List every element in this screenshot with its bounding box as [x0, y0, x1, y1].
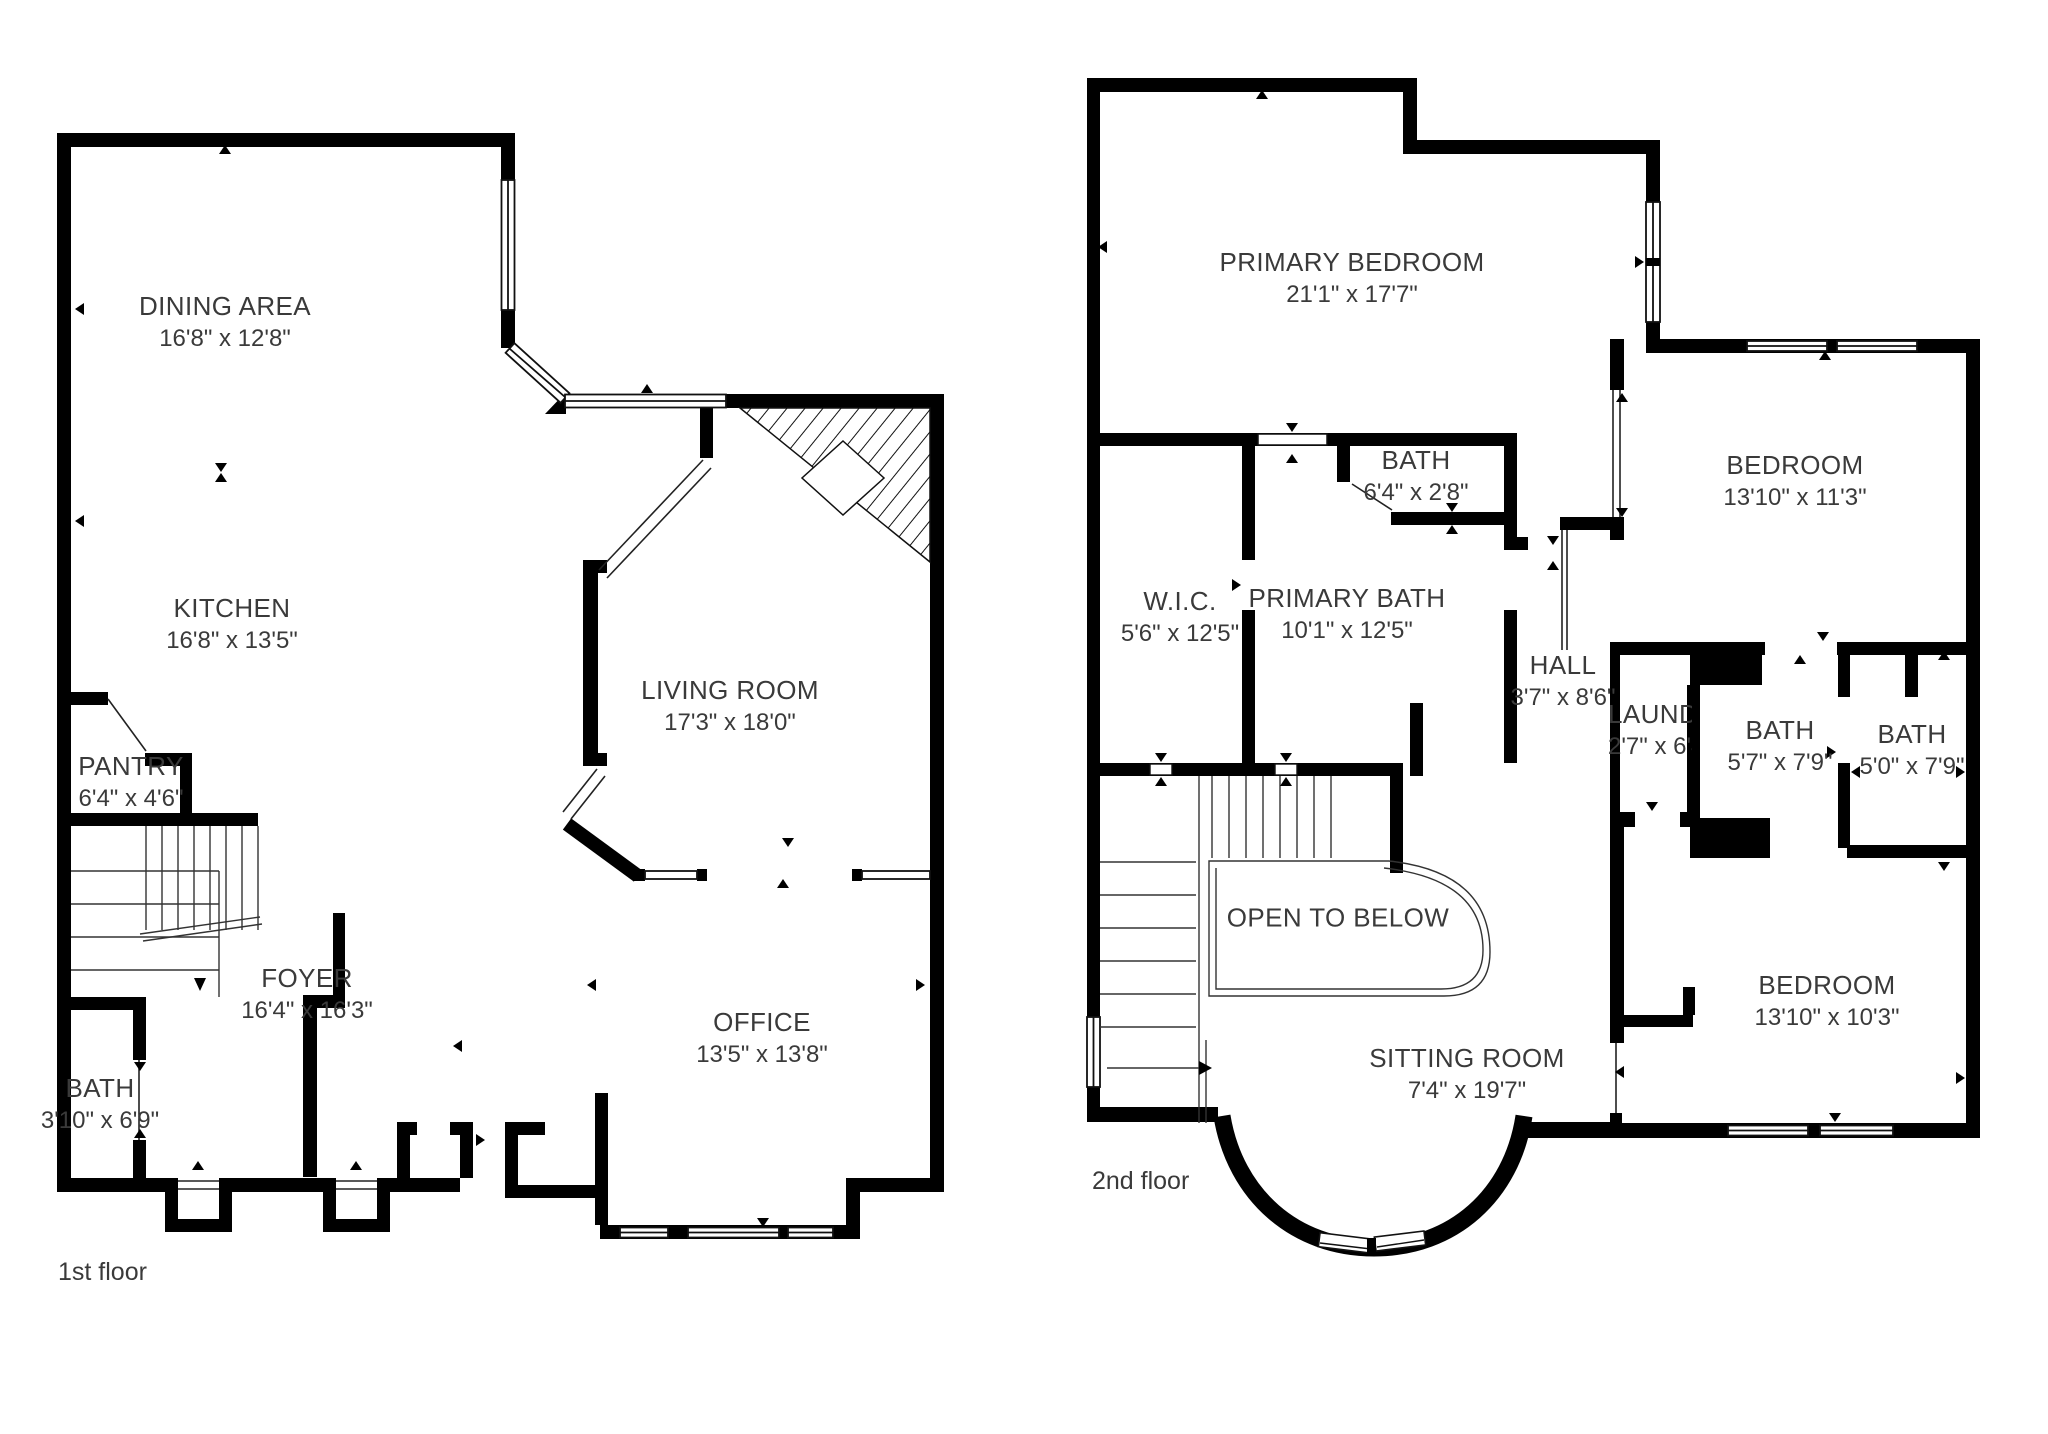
window-mullion: [1646, 258, 1660, 266]
floor-plan-page: DINING AREA 16'8" x 12'8" KITCHEN 16'8" …: [0, 0, 2048, 1434]
floor-plan-drawing: [0, 0, 2048, 1434]
